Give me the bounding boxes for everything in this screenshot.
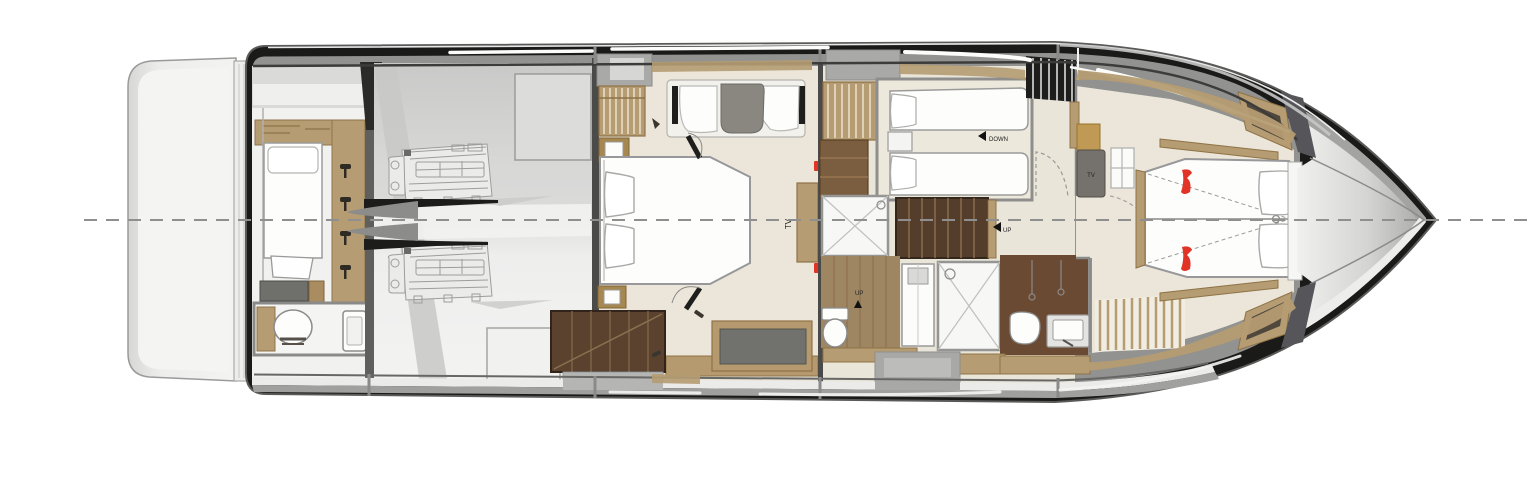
svg-text:DOWN: DOWN <box>989 137 1008 143</box>
svg-text:UP: UP <box>855 291 863 297</box>
svg-text:TV: TV <box>1087 173 1095 179</box>
svg-text:UP: UP <box>1003 228 1011 234</box>
